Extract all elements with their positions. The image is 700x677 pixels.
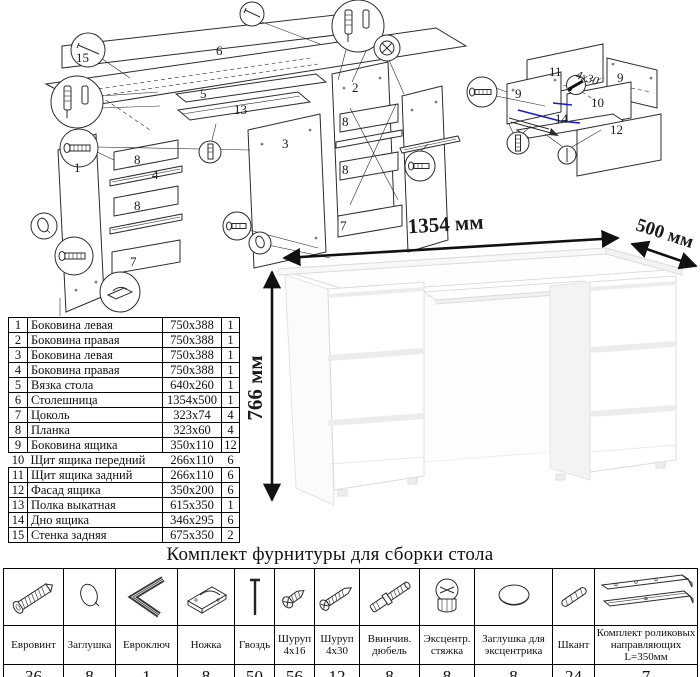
screw-4x30-icon (316, 571, 358, 623)
part-label-5: 5 (200, 86, 207, 101)
part-qty: 6 (222, 513, 240, 528)
part-qty: 1 (222, 348, 240, 363)
hardware-icon-cell (116, 569, 178, 626)
part-number: 4 (9, 363, 28, 378)
hardware-qty: 8 (420, 665, 475, 677)
dowel-callout (199, 141, 221, 163)
part-name: Столешница (28, 393, 163, 408)
part-number: 10 (9, 453, 28, 468)
part-number: 11 (9, 468, 28, 483)
hardware-names-row: Евровинт Заглушка Евроключ Ножка Гвоздь … (4, 626, 698, 665)
desk-dimension-drawing: 1354 мм 500 мм 766 мм (250, 212, 700, 512)
hardware-icon-cell (178, 569, 235, 626)
part-label-4: 4 (152, 167, 159, 182)
table-row: 3Боковина левая750x3881 (9, 348, 240, 363)
table-row: 7Цоколь323x744 (9, 408, 240, 423)
part-qty: 1 (222, 363, 240, 378)
part-name: Боковина правая (28, 333, 163, 348)
hardware-qty: 56 (275, 665, 315, 677)
assembly-instruction-sheet: 15 6 1 2 3 4 5 13 8 8 8 8 7 7 (0, 0, 700, 677)
cam-lock-callout (374, 35, 400, 61)
part-size: 350x110 (163, 438, 222, 453)
part-qty: 1 (222, 393, 240, 408)
part-size: 266x110 (163, 453, 222, 468)
parts-list-table: 1Боковина левая750x3881 2Боковина правая… (8, 317, 240, 543)
hardware-name: Ввинчив. дюбель (360, 626, 420, 665)
euroscrew-callout-2 (55, 237, 93, 275)
part-label-13: 13 (234, 102, 247, 117)
drawer-slides-icon (596, 571, 696, 623)
hardware-qty: 1 (116, 665, 178, 677)
part-name: Боковина правая (28, 363, 163, 378)
hardware-icon-cell (64, 569, 116, 626)
hardware-icon-cell (360, 569, 420, 626)
part-size: 346x295 (163, 513, 222, 528)
part-qty: 1 (222, 498, 240, 513)
part-label-8b: 8 (134, 198, 141, 213)
table-row: 14Дно ящика346x2956 (9, 513, 240, 528)
hardware-qty: 8 (178, 665, 235, 677)
hardware-kit-title: Комплект фурнитуры для сборки стола (0, 544, 660, 566)
euroscrew-callout-3 (223, 212, 251, 240)
part-size: 640x260 (163, 378, 222, 393)
drawer-label-9a: 9 (515, 86, 522, 101)
cam-cap-icon (484, 571, 544, 623)
table-row: 1Боковина левая750x3881 (9, 318, 240, 333)
part-number: 9 (9, 438, 28, 453)
part-size: 1354x500 (163, 393, 222, 408)
table-row: 15Стенка задняя675x3502 (9, 528, 240, 543)
part-label-15: 15 (76, 50, 89, 65)
part-number: 15 (9, 528, 28, 543)
part-name: Дно ящика (28, 513, 163, 528)
hexkey-icon (119, 571, 175, 623)
hardware-name: Шкант (553, 626, 595, 665)
hardware-icons-row (4, 569, 698, 626)
hardware-qty: 8 (360, 665, 420, 677)
part-size: 750x388 (163, 333, 222, 348)
table-row: 8Планка323x604 (9, 423, 240, 438)
hardware-name: Заглушка (64, 626, 116, 665)
part-size: 323x60 (163, 423, 222, 438)
part-number: 1 (9, 318, 28, 333)
part-size: 675x350 (163, 528, 222, 543)
part-number: 12 (9, 483, 28, 498)
nail-icon (238, 571, 272, 623)
table-row: 4Боковина правая750x3881 (9, 363, 240, 378)
part-number: 2 (9, 333, 28, 348)
hardware-icon-cell (235, 569, 275, 626)
part-number: 3 (9, 348, 28, 363)
desk-height-dimension: 766 мм (243, 355, 267, 420)
part-size: 750x388 (163, 348, 222, 363)
table-row: 5Вязка стола640x2601 (9, 378, 240, 393)
hardware-icon-cell (595, 569, 698, 626)
hardware-qty-row: 36 8 1 8 50 56 12 8 8 8 24 7 (4, 665, 698, 677)
screw-4x16-icon (277, 571, 313, 623)
desk-width-dimension: 1354 мм (407, 210, 484, 239)
part-label-8a: 8 (134, 152, 141, 167)
nail-callout-2 (240, 2, 264, 26)
hardware-qty: 36 (4, 665, 64, 677)
part-number: 14 (9, 513, 28, 528)
part-size: 266x110 (163, 468, 222, 483)
hardware-name: Комплект роликовых направляющих L=350мм (595, 626, 698, 665)
drawer-label-9b: 9 (617, 70, 624, 85)
hardware-name: Заглушка для эксцентрика (475, 626, 553, 665)
drawer-label-14: 14 (555, 111, 569, 126)
part-label-1: 1 (74, 160, 81, 175)
part-name: Боковина ящика (28, 438, 163, 453)
hardware-qty: 50 (235, 665, 275, 677)
cap-icon (67, 571, 113, 623)
foot-callout (100, 272, 140, 312)
part-qty: 1 (222, 318, 240, 333)
cam-lock-icon (422, 571, 472, 623)
part-label-8d: 8 (342, 162, 349, 177)
drawer-label-11: 11 (549, 64, 562, 79)
part-qty: 6 (222, 468, 240, 483)
part-label-3: 3 (282, 136, 289, 151)
part-number: 5 (9, 378, 28, 393)
hardware-icon-cell (4, 569, 64, 626)
table-row: 6Столешница1354x5001 (9, 393, 240, 408)
hardware-name: Гвоздь (235, 626, 275, 665)
euroscrew-icon (7, 571, 61, 623)
dowel-icon (554, 571, 594, 623)
part-qty: 4 (222, 423, 240, 438)
table-row: 10Щит ящика передний266x1106 (9, 453, 240, 468)
part-name: Вязка стола (28, 378, 163, 393)
screw-callout (405, 151, 435, 181)
hardware-icon-cell (315, 569, 360, 626)
part-qty: 2 (222, 528, 240, 543)
part-number: 6 (9, 393, 28, 408)
part-qty: 6 (222, 483, 240, 498)
nail-callout (558, 146, 576, 164)
hardware-name: Ножка (178, 626, 235, 665)
part-name: Стенка задняя (28, 528, 163, 543)
foot-icon (180, 571, 232, 623)
hardware-name: Евровинт (4, 626, 64, 665)
hardware-qty: 24 (553, 665, 595, 677)
table-row: 11Щит ящика задний266x1106 (9, 468, 240, 483)
part-qty: 4 (222, 408, 240, 423)
cap-callout (31, 213, 57, 239)
part-qty: 6 (222, 453, 240, 468)
part-name: Щит ящика передний (28, 453, 163, 468)
part-size: 615x350 (163, 498, 222, 513)
part-size: 350x200 (163, 483, 222, 498)
part-number: 13 (9, 498, 28, 513)
hardware-icon-cell (475, 569, 553, 626)
part-size: 750x388 (163, 363, 222, 378)
part-label-2: 2 (352, 80, 359, 95)
hardware-name: Евроключ (116, 626, 178, 665)
part-label-7a: 7 (130, 254, 137, 269)
table-row: 9Боковина ящика350x11012 (9, 438, 240, 453)
hardware-icon-cell (553, 569, 595, 626)
hardware-qty: 12 (315, 665, 360, 677)
bolt-sleeve-callout (51, 76, 103, 128)
hardware-qty: 8 (64, 665, 116, 677)
part-name: Цоколь (28, 408, 163, 423)
part-number: 8 (9, 423, 28, 438)
part-label-6: 6 (216, 43, 223, 58)
part-name: Боковина левая (28, 348, 163, 363)
dowel-callout (507, 132, 529, 154)
drawer-label-12: 12 (610, 122, 623, 137)
part-qty: 1 (222, 333, 240, 348)
hardware-icon-cell (420, 569, 475, 626)
table-row: 12Фасад ящика350x2006 (9, 483, 240, 498)
part-label-8c: 8 (342, 114, 349, 129)
hardware-icon-cell (275, 569, 315, 626)
drawer-assembly-diagram: 11 9 9 10 14 12 4x30 (455, 28, 700, 235)
hardware-name: Шуруп 4x16 (275, 626, 315, 665)
table-row: 2Боковина правая750x3881 (9, 333, 240, 348)
hardware-name: Шуруп 4x30 (315, 626, 360, 665)
hardware-qty: 7 (595, 665, 698, 677)
part-qty: 12 (222, 438, 240, 453)
part-size: 323x74 (163, 408, 222, 423)
part-name: Боковина левая (28, 318, 163, 333)
hardware-kit-table: Евровинт Заглушка Евроключ Ножка Гвоздь … (3, 568, 698, 677)
euroscrew-callout (467, 77, 497, 107)
hardware-qty: 8 (475, 665, 553, 677)
screw-dowel-icon (362, 571, 418, 623)
part-qty: 1 (222, 378, 240, 393)
part-name: Фасад ящика (28, 483, 163, 498)
part-number: 7 (9, 408, 28, 423)
part-name: Полка выкатная (28, 498, 163, 513)
part-size: 750x388 (163, 318, 222, 333)
table-row: 13Полка выкатная615x3501 (9, 498, 240, 513)
part-name: Планка (28, 423, 163, 438)
part-name: Щит ящика задний (28, 468, 163, 483)
drawer-label-10: 10 (591, 95, 604, 110)
hardware-name: Эксцентр. стяжка (420, 626, 475, 665)
